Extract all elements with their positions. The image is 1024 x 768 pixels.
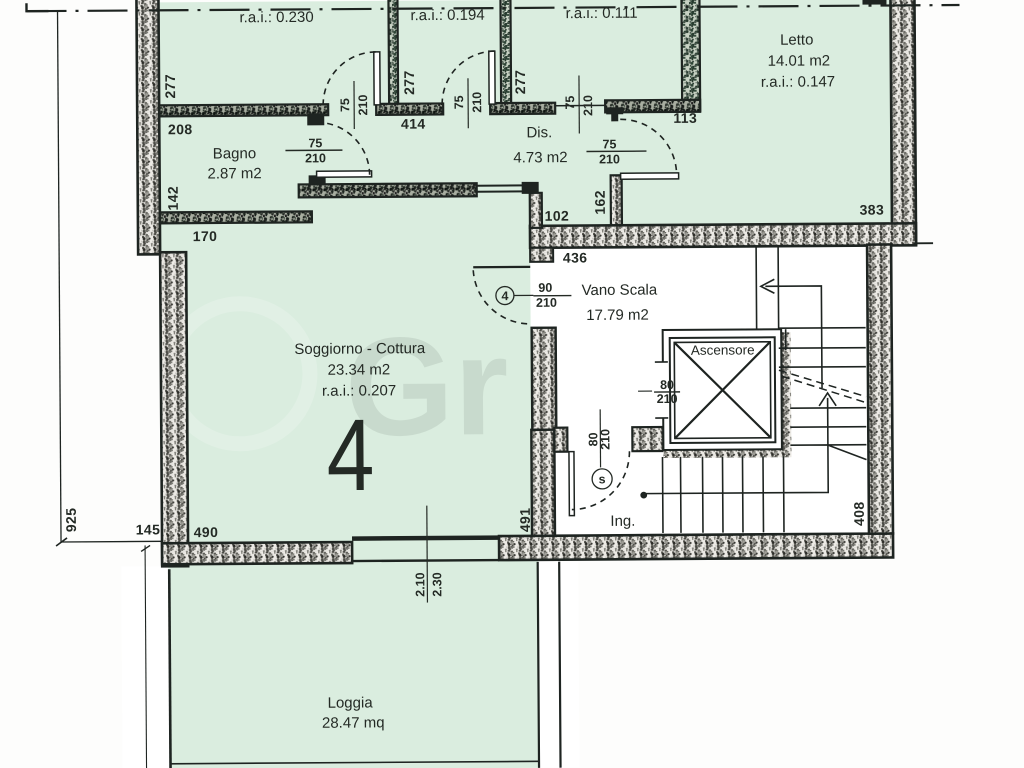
svg-text:208: 208: [168, 121, 193, 137]
svg-text:491: 491: [517, 508, 533, 533]
svg-text:142: 142: [165, 186, 181, 211]
svg-text:17.79 m2: 17.79 m2: [586, 307, 649, 324]
svg-text:277: 277: [512, 70, 528, 95]
svg-text:210: 210: [536, 296, 557, 310]
svg-text:277: 277: [401, 70, 417, 95]
svg-text:145: 145: [136, 521, 161, 537]
svg-text:Ascensore: Ascensore: [691, 342, 755, 357]
svg-text:210: 210: [305, 151, 326, 165]
svg-text:4: 4: [326, 398, 374, 512]
svg-text:Soggiorno - Cottura: Soggiorno - Cottura: [294, 340, 426, 358]
svg-text:210: 210: [470, 92, 484, 113]
svg-text:210: 210: [657, 392, 678, 406]
svg-text:r.a.i.: 0.230: r.a.i.: 0.230: [239, 9, 313, 26]
svg-text:162: 162: [592, 190, 608, 215]
svg-text:210: 210: [581, 95, 595, 116]
svg-text:408: 408: [851, 501, 867, 526]
svg-text:75: 75: [563, 96, 577, 110]
svg-text:102: 102: [545, 208, 570, 224]
svg-text:2.10: 2.10: [413, 572, 427, 596]
svg-text:s: s: [599, 472, 606, 486]
svg-text:4.73 m2: 4.73 m2: [513, 149, 567, 166]
svg-text:2.30: 2.30: [430, 572, 444, 596]
svg-text:23.34 m2: 23.34 m2: [328, 361, 391, 378]
svg-text:Ing.: Ing.: [610, 513, 635, 530]
svg-text:Loggia: Loggia: [328, 694, 374, 711]
svg-text:925: 925: [63, 508, 79, 533]
svg-text:80: 80: [660, 378, 674, 392]
svg-text:210: 210: [599, 152, 620, 166]
svg-text:4: 4: [501, 289, 508, 303]
svg-text:Dis.: Dis.: [526, 124, 552, 141]
svg-text:90: 90: [538, 281, 552, 295]
svg-text:75: 75: [308, 136, 322, 150]
svg-text:113: 113: [673, 110, 697, 126]
svg-text:r.a.i.: 0.147: r.a.i.: 0.147: [761, 73, 835, 90]
svg-text:75: 75: [338, 98, 352, 112]
svg-text:28.47 mq: 28.47 mq: [322, 714, 385, 731]
svg-text:490: 490: [194, 524, 219, 540]
svg-text:75: 75: [452, 95, 466, 109]
svg-text:436: 436: [563, 249, 588, 265]
svg-text:Vano Scala: Vano Scala: [582, 282, 658, 300]
svg-text:Letto: Letto: [780, 31, 813, 48]
svg-text:2.87 m2: 2.87 m2: [207, 165, 261, 182]
svg-text:277: 277: [162, 74, 178, 99]
svg-text:414: 414: [401, 116, 426, 132]
svg-text:383: 383: [860, 202, 885, 218]
svg-text:170: 170: [193, 228, 218, 244]
svg-text:14.01 m2: 14.01 m2: [768, 52, 831, 69]
svg-text:r.a.i.: 0.111: r.a.i.: 0.111: [565, 5, 637, 22]
svg-text:75: 75: [602, 137, 616, 151]
svg-text:Bagno: Bagno: [213, 145, 256, 162]
svg-text:210: 210: [598, 429, 612, 450]
svg-text:210: 210: [356, 94, 370, 115]
svg-text:r.a.i.: 0.194: r.a.i.: 0.194: [410, 7, 484, 24]
